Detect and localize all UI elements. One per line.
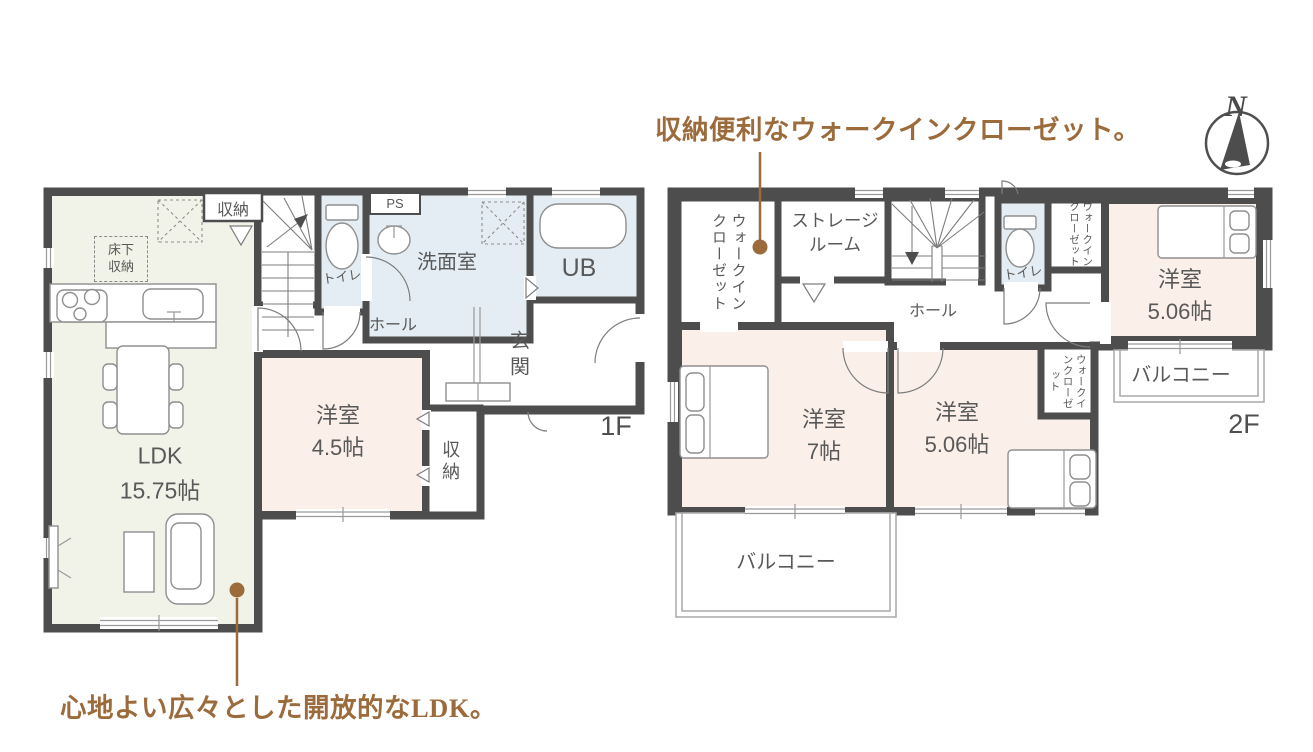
bedroom-45-label: 洋室 4.5帖 (312, 400, 365, 464)
annotation-top: 収納便利なウォークインクローゼット。 (655, 108, 1140, 147)
staircase-2f (888, 198, 982, 282)
balcony-bottom-label: バルコニー (736, 550, 836, 577)
pipe-space-label: PS (370, 193, 420, 213)
toilet-icon-2f (1004, 216, 1036, 267)
closet-top-label: 収納 (206, 195, 260, 220)
wic-left-label: ウォークインクローゼット (709, 211, 748, 313)
floor1-label: 1F (600, 408, 632, 444)
washroom-label: 洗面室 (417, 250, 477, 277)
toilet-icon-1f (326, 205, 358, 269)
annotation-bottom: 心地よい広々とした開放的なLDK。 (60, 686, 497, 725)
floor2-label: 2F (1228, 406, 1260, 442)
entrance-label: 玄関 (504, 330, 531, 382)
underfloor-storage-label: 床下 収納 (94, 236, 148, 282)
closet-side-label: 収納 (438, 440, 462, 484)
wic-middle-label: ウォークインクローゼット (1047, 349, 1086, 413)
compass-north-label: N (1225, 90, 1247, 124)
bedroom-506-top-label: 洋室 5.06帖 (1148, 264, 1213, 328)
unit-bath-label: UB (562, 252, 597, 286)
bed-icon-506-top (1158, 206, 1256, 258)
balcony-right-label: バルコニー (1131, 363, 1231, 390)
ldk-label: LDK 15.75帖 (120, 439, 201, 508)
bedroom-7-label: 洋室 7帖 (802, 404, 846, 468)
bed-icon-506-bottom (1008, 450, 1096, 508)
storage-room-label: ストレージ ルーム (791, 209, 878, 256)
wic-top-right-label: ウォークインクローゼット (1067, 201, 1093, 267)
hall-label-2f: ホール (909, 301, 957, 323)
bedroom-506-bottom-label: 洋室 5.06帖 (925, 397, 990, 461)
hall-label-1f: ホール (369, 315, 417, 337)
sofa-icon (166, 514, 214, 604)
coffee-table-icon (124, 532, 154, 592)
washbasin-icon (378, 226, 410, 254)
floor-plan-page: 収納 床下 収納 PS トイレ 洗面室 UB ホール 玄関 洋室 4.5帖 収納… (0, 0, 1313, 752)
bed-icon-7 (680, 366, 768, 458)
bathtub-icon (540, 204, 626, 248)
